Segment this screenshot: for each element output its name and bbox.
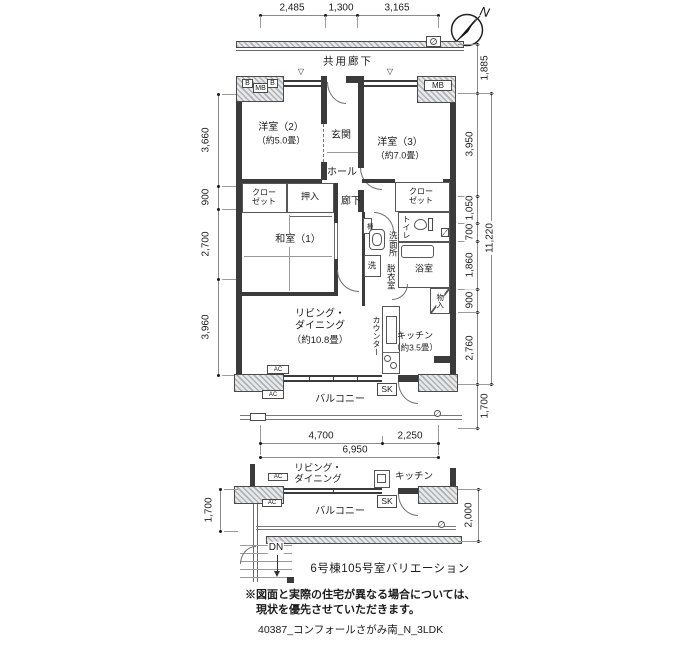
corridor-label: 廊下	[341, 196, 361, 209]
compass-north-label: N	[478, 3, 491, 20]
dim-label: 2,485	[277, 3, 306, 14]
wall	[358, 76, 364, 168]
door-arc-stairs	[240, 546, 256, 564]
bathtub-icon	[401, 245, 434, 258]
wall-endcap	[287, 577, 294, 583]
ac-unit-box: AC	[262, 390, 284, 399]
concrete-wall	[418, 486, 458, 504]
balcony-slab	[266, 536, 462, 544]
stair-wall	[257, 504, 258, 582]
dim-tick	[260, 425, 261, 455]
dim-dot	[381, 442, 384, 445]
ac-unit-box: AC	[268, 473, 288, 481]
window-tick	[333, 488, 334, 494]
dim-line	[260, 457, 438, 458]
dim-label: 1,050	[465, 193, 476, 222]
dim-label: 2,760	[465, 333, 476, 362]
dim-label: 3,960	[201, 312, 212, 341]
sk-slop-sink-box: SK	[377, 495, 397, 508]
toilet-window	[441, 228, 449, 237]
wall	[362, 179, 395, 183]
dim-dot	[219, 488, 222, 491]
dim-label: 1,700	[480, 391, 491, 420]
dim-line	[218, 94, 219, 375]
drawing-code: 40387_コンフォールさがみ南_N_3LDK	[258, 622, 443, 637]
sub-kitchen-label: キッチン	[395, 471, 433, 483]
dim-dot	[217, 93, 220, 96]
room-size-living-dining: （約10.8畳）	[292, 335, 349, 347]
stair-arrow-head	[274, 571, 280, 577]
shared-corridor-label: 共用廊下	[323, 55, 373, 68]
disclaimer-line2: 現状を優先させていただきます。	[256, 601, 420, 617]
window	[284, 80, 324, 87]
disclaimer-line1: ※図面と実際の住宅が異なる場合については、	[245, 586, 475, 602]
variation-caption: 6号棟105号室バリエーション	[310, 562, 469, 576]
balcony-edge	[240, 415, 462, 420]
dim-tick	[224, 489, 238, 490]
dim-dot	[217, 374, 220, 377]
sliding-door	[334, 223, 335, 259]
dim-tick	[458, 384, 494, 385]
closet-right-label: クローゼット	[408, 187, 435, 205]
dim-total-label: 11,220	[485, 221, 496, 255]
dim-tick	[260, 16, 261, 28]
door-arc-bath	[392, 284, 408, 300]
sink-bowl-icon	[372, 233, 382, 246]
balcony-hatch-box	[250, 413, 266, 421]
window	[364, 80, 417, 87]
storage-label: 物入	[436, 294, 444, 309]
room-label-western3: 洋室（3）	[377, 137, 423, 150]
corridor-edge	[236, 50, 464, 51]
dim-label: 3,660	[201, 125, 212, 154]
wall	[398, 375, 418, 382]
stair-wall	[253, 504, 254, 582]
stove-burner-icon	[384, 355, 391, 362]
wall	[236, 76, 242, 376]
dim-label: 2,700	[201, 229, 212, 258]
dim-label: 1,300	[326, 3, 355, 14]
sub-balcony-label: バルコニー	[315, 506, 365, 519]
room-label-entrance: 玄関	[331, 130, 351, 143]
dim-line	[478, 489, 479, 541]
wall	[334, 183, 338, 223]
toilet-label: トイレ	[402, 215, 410, 239]
concrete-wall	[418, 374, 458, 392]
dim-dot	[217, 185, 220, 188]
door-arc-corridor-ld	[337, 270, 359, 292]
floor-plan: 2,485 1,300 3,165 N 共用廊下 1,885 3,950 1,0…	[0, 0, 700, 650]
dim-tick	[458, 489, 482, 490]
dim-label: 2,250	[395, 431, 424, 442]
washer-label: 洗	[368, 261, 377, 272]
dim-dot	[217, 278, 220, 281]
room-label-japanese1: 和室（1）	[273, 234, 323, 247]
dim-tick	[458, 428, 480, 429]
wall	[242, 292, 334, 296]
dim-tick	[458, 44, 480, 45]
window-tick	[357, 375, 358, 382]
dim-tick	[438, 425, 439, 455]
ac-unit-box: AC	[262, 499, 282, 507]
window-marker-icon: ▽	[298, 67, 304, 77]
pipe-shaft-box: B	[267, 79, 278, 88]
dim-label: 3,950	[465, 129, 476, 158]
tatami-line	[244, 256, 332, 257]
door-opening	[321, 124, 327, 162]
stair-step	[240, 577, 292, 578]
meter-box: MB	[253, 83, 268, 93]
toilet-bowl-icon	[414, 219, 427, 230]
balcony-label: バルコニー	[315, 394, 365, 407]
room-size-western3: （約7.0畳）	[376, 150, 425, 161]
closet-left-label: クローゼット	[251, 188, 278, 206]
dim-label: 1,885	[480, 53, 491, 82]
drain-symbol-icon	[438, 521, 445, 528]
wall	[434, 356, 456, 363]
window-tick	[309, 375, 310, 382]
dim-tick	[357, 16, 358, 28]
drain-symbol-icon	[430, 38, 437, 45]
room-label-living-dining: リビング・ダイニング	[292, 309, 348, 332]
dim-dot	[437, 456, 440, 459]
room-label-western2: 洋室（2）	[258, 122, 304, 135]
entrance-door-arc	[327, 82, 346, 104]
counter-label: カウンター	[372, 316, 380, 356]
dim-dot	[217, 208, 220, 211]
shelf-label: 棚	[365, 223, 372, 230]
stair-step	[240, 569, 292, 570]
drain-symbol-icon	[434, 410, 441, 417]
dim-tick	[438, 16, 439, 28]
dim-label: 1,860	[465, 250, 476, 279]
dim-total-label: 6,950	[340, 445, 369, 456]
dim-label: 900	[201, 187, 212, 208]
folding-door	[323, 124, 324, 162]
sliding-door	[290, 216, 332, 217]
dim-dot	[259, 442, 262, 445]
dim-label: 900	[465, 290, 476, 311]
dim-dot	[219, 530, 222, 533]
meter-box: MB	[424, 80, 452, 91]
dim-line	[220, 489, 221, 531]
door-arc-balcony	[398, 494, 418, 516]
room-label-hall: ホール	[327, 167, 357, 180]
sub-living-dining-label: リビング・ダイニング	[292, 464, 344, 486]
door-arc-balcony	[398, 382, 418, 404]
dim-label: 1,700	[204, 495, 215, 524]
dim-label: 700	[465, 222, 476, 243]
dim-tick	[458, 93, 494, 94]
entrance-step-line	[327, 152, 358, 153]
pipe-shaft-box: B	[242, 79, 253, 88]
dim-tick	[325, 16, 326, 28]
ac-unit-box: AC	[267, 365, 289, 374]
sk-slop-sink-box: SK	[377, 383, 397, 396]
kitchen-sink-icon	[386, 316, 397, 344]
dim-tick	[224, 531, 238, 532]
dim-label: 2,000	[464, 500, 475, 529]
dim-tick	[458, 541, 482, 542]
stair-arrow-line	[277, 555, 278, 571]
sliding-door	[337, 223, 338, 259]
dim-line	[477, 44, 478, 428]
washroom-label: 洗面所	[389, 231, 398, 257]
room-size-kitchen: （約3.5畳）	[392, 343, 438, 354]
balcony-edge	[256, 526, 456, 530]
wall	[450, 76, 456, 376]
toilet-tank-icon	[428, 218, 433, 231]
dim-dot	[437, 442, 440, 445]
dim-label: 3,165	[382, 3, 411, 14]
stove-burner-icon	[390, 362, 397, 369]
bathroom-label: 浴室	[415, 263, 433, 274]
sub-counter-inner	[377, 474, 386, 483]
dim-label: 4,700	[306, 431, 335, 442]
tatami-line	[289, 215, 290, 291]
window-marker-icon: ▽	[387, 67, 393, 77]
room-label-kitchen: キッチン	[397, 330, 433, 341]
room-size-western2: （約5.0畳）	[257, 135, 306, 146]
window-tick	[333, 375, 334, 382]
oshiire-label: 押入	[301, 191, 319, 202]
dim-line	[260, 15, 438, 16]
dim-dot	[259, 456, 262, 459]
dim-tick	[458, 312, 480, 313]
down-stairs-label: DN	[268, 542, 284, 555]
